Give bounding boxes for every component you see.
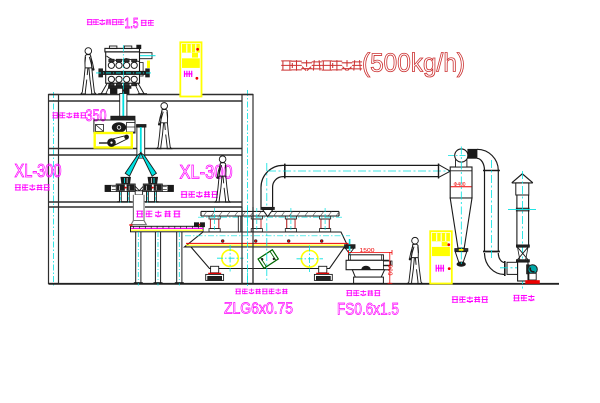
svg-text:1.5: 1.5 — [125, 15, 139, 32]
svg-text:350: 350 — [86, 107, 107, 125]
svg-text:ZLG6x0.75: ZLG6x0.75 — [224, 301, 293, 318]
svg-text:Φ400: Φ400 — [454, 182, 466, 188]
svg-text:XL-300: XL-300 — [15, 160, 62, 181]
svg-text:FS0.6x1.5: FS0.6x1.5 — [337, 301, 399, 319]
svg-text:XL-300: XL-300 — [180, 162, 233, 184]
svg-text:(500kg/h): (500kg/h) — [362, 48, 465, 78]
svg-text:1500: 1500 — [360, 248, 375, 254]
svg-text:600: 600 — [389, 264, 395, 276]
